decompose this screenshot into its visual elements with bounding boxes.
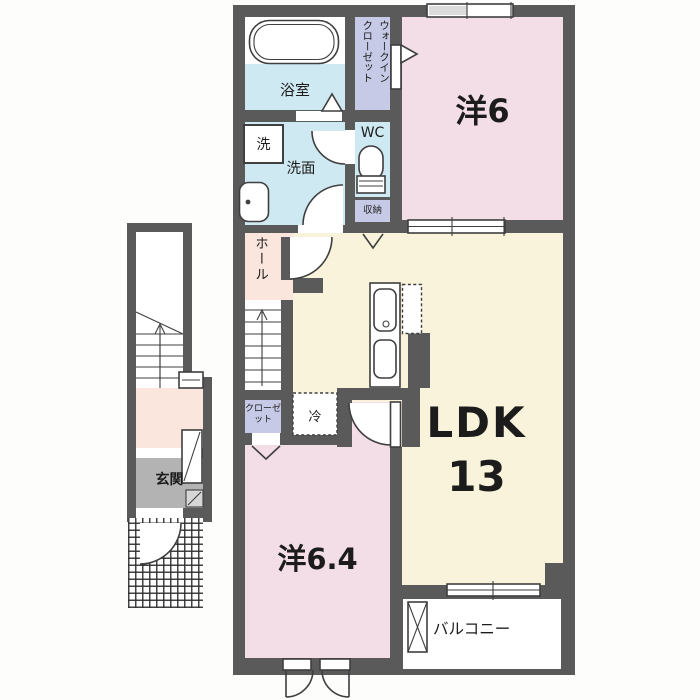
storage-door-icon — [363, 234, 383, 248]
hall-label: ホール — [250, 236, 270, 300]
kitchen-sink-icon — [374, 289, 396, 331]
bathtub-icon — [250, 21, 339, 64]
toilet-icon — [359, 146, 383, 180]
wc-label: WC — [355, 125, 390, 141]
walk-in-closet-label: ウォークイン クローゼット — [352, 20, 392, 112]
fixtures-overlay — [0, 0, 700, 700]
floorplan: 洗 — [0, 0, 700, 700]
kitchen-bar-icon — [403, 285, 422, 334]
western6-door-leaf — [391, 45, 401, 89]
main-stairs-steps — [245, 310, 281, 382]
kitchen-stove-icon — [374, 340, 396, 378]
entrance-label: 玄関 — [136, 469, 203, 489]
closet-label: クローゼット — [245, 404, 281, 427]
western-6-label: 洋6 — [402, 86, 563, 132]
annex-stairs-arrow — [155, 324, 165, 380]
western6-door-flag — [401, 45, 417, 63]
ldk-label: LDK — [390, 398, 563, 447]
western-64-label: 洋6.4 — [245, 536, 390, 578]
refrigerator-label: 冷 — [293, 406, 337, 425]
washroom-label: 洗面 — [258, 157, 344, 178]
vanity-sink-icon — [240, 183, 269, 222]
western64-south-door-left — [283, 659, 311, 670]
ldk-size-label: 13 — [390, 452, 563, 501]
bathroom-label: 浴室 — [245, 79, 345, 100]
storage-label: 収納 — [355, 202, 390, 216]
closet-door-icon — [252, 446, 280, 459]
main-stairs-arrow — [257, 310, 267, 386]
western64-south-door-right — [320, 659, 350, 670]
balcony-label: バルコニー — [433, 617, 510, 639]
